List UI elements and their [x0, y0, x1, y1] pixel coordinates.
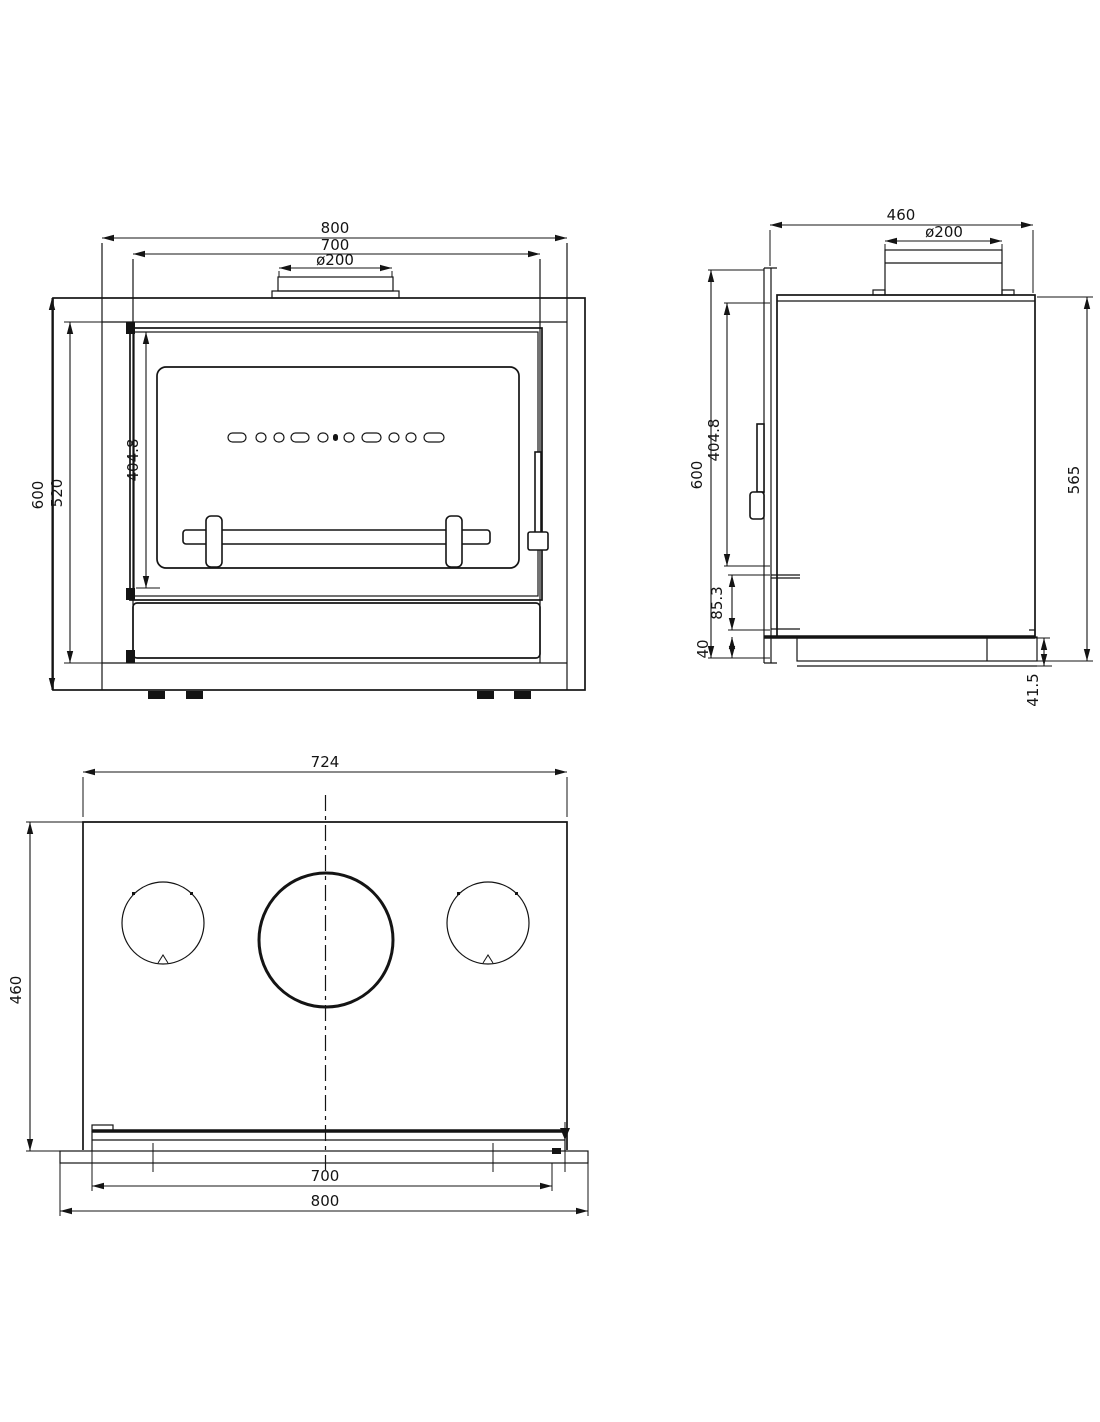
front-door-frame — [130, 328, 542, 600]
side-dim-40: 40 — [694, 639, 712, 658]
technical-drawing-page: 800 700 ø200 600 520 404.8 — [0, 0, 1100, 1422]
side-dim-404: 404.8 — [705, 419, 723, 462]
side-view: 460 ø200 600 404.8 85.3 40 565 41.5 — [688, 206, 1093, 707]
side-handle-strip — [757, 424, 764, 492]
front-dim-800: 800 — [321, 219, 350, 237]
ash-drawer-panel — [133, 603, 540, 658]
front-dim-flue: ø200 — [316, 251, 354, 269]
vent-dot — [333, 434, 338, 441]
front-door-frame-inner — [134, 332, 538, 596]
top-dim-724: 724 — [311, 753, 340, 771]
vent-slot — [362, 433, 381, 442]
top-dim-460: 460 — [7, 976, 25, 1005]
top-dim-700: 700 — [311, 1167, 340, 1185]
side-dim-565: 565 — [1065, 466, 1083, 495]
flue-collar-body — [278, 277, 393, 291]
front-dim-600: 600 — [29, 481, 47, 510]
foot — [477, 691, 494, 699]
door-handle-latch — [528, 532, 548, 550]
vent-slot — [228, 433, 246, 442]
drawing-canvas: 800 700 ø200 600 520 404.8 — [0, 0, 1100, 1422]
door-handle — [528, 452, 548, 550]
vent-slot — [318, 433, 328, 442]
side-flue-collar — [873, 250, 1014, 295]
vent-slot — [344, 433, 354, 442]
top-extension-lines — [26, 777, 588, 1216]
vent-slot — [291, 433, 309, 442]
front-frame-sides — [92, 1131, 565, 1151]
side-dim-85: 85.3 — [708, 586, 726, 619]
side-dim-flue: ø200 — [925, 223, 963, 241]
foot — [148, 691, 165, 699]
vent-slot — [389, 433, 399, 442]
log-retainer-post-left — [206, 516, 222, 567]
vent-slot — [406, 433, 416, 442]
vent-slot — [424, 433, 444, 442]
side-front-frame — [764, 268, 800, 663]
log-retainer-post-right — [446, 516, 462, 567]
vent-slot — [256, 433, 266, 442]
side-plinth — [797, 637, 1037, 666]
top-front-assembly — [60, 1122, 588, 1172]
door-handle-bar — [535, 452, 541, 542]
side-dim-600: 600 — [688, 461, 706, 490]
side-body — [777, 295, 1035, 637]
side-handle-latch — [750, 492, 764, 519]
foot — [186, 691, 203, 699]
side-flue-body — [885, 250, 1002, 295]
flue-collar-base — [272, 291, 399, 298]
foot — [514, 691, 531, 699]
side-dim-41: 41.5 — [1024, 673, 1042, 706]
front-shell-lines — [102, 243, 567, 690]
top-view: 724 460 700 800 — [7, 753, 588, 1216]
vent-slot — [274, 433, 284, 442]
front-dim-404: 404.8 — [124, 439, 142, 482]
plinth-body — [797, 637, 1037, 661]
front-plate — [60, 1151, 588, 1163]
feet — [148, 691, 531, 699]
front-extension-lines — [64, 271, 392, 663]
front-view: 800 700 ø200 600 520 404.8 — [29, 219, 585, 699]
vent-slots — [228, 433, 444, 442]
side-dim-460: 460 — [887, 206, 916, 224]
front-flue-collar — [272, 277, 399, 298]
log-retainer — [183, 516, 490, 567]
top-dim-800: 800 — [311, 1192, 340, 1210]
front-dim-520: 520 — [48, 479, 66, 508]
log-retainer-bar — [183, 530, 490, 544]
